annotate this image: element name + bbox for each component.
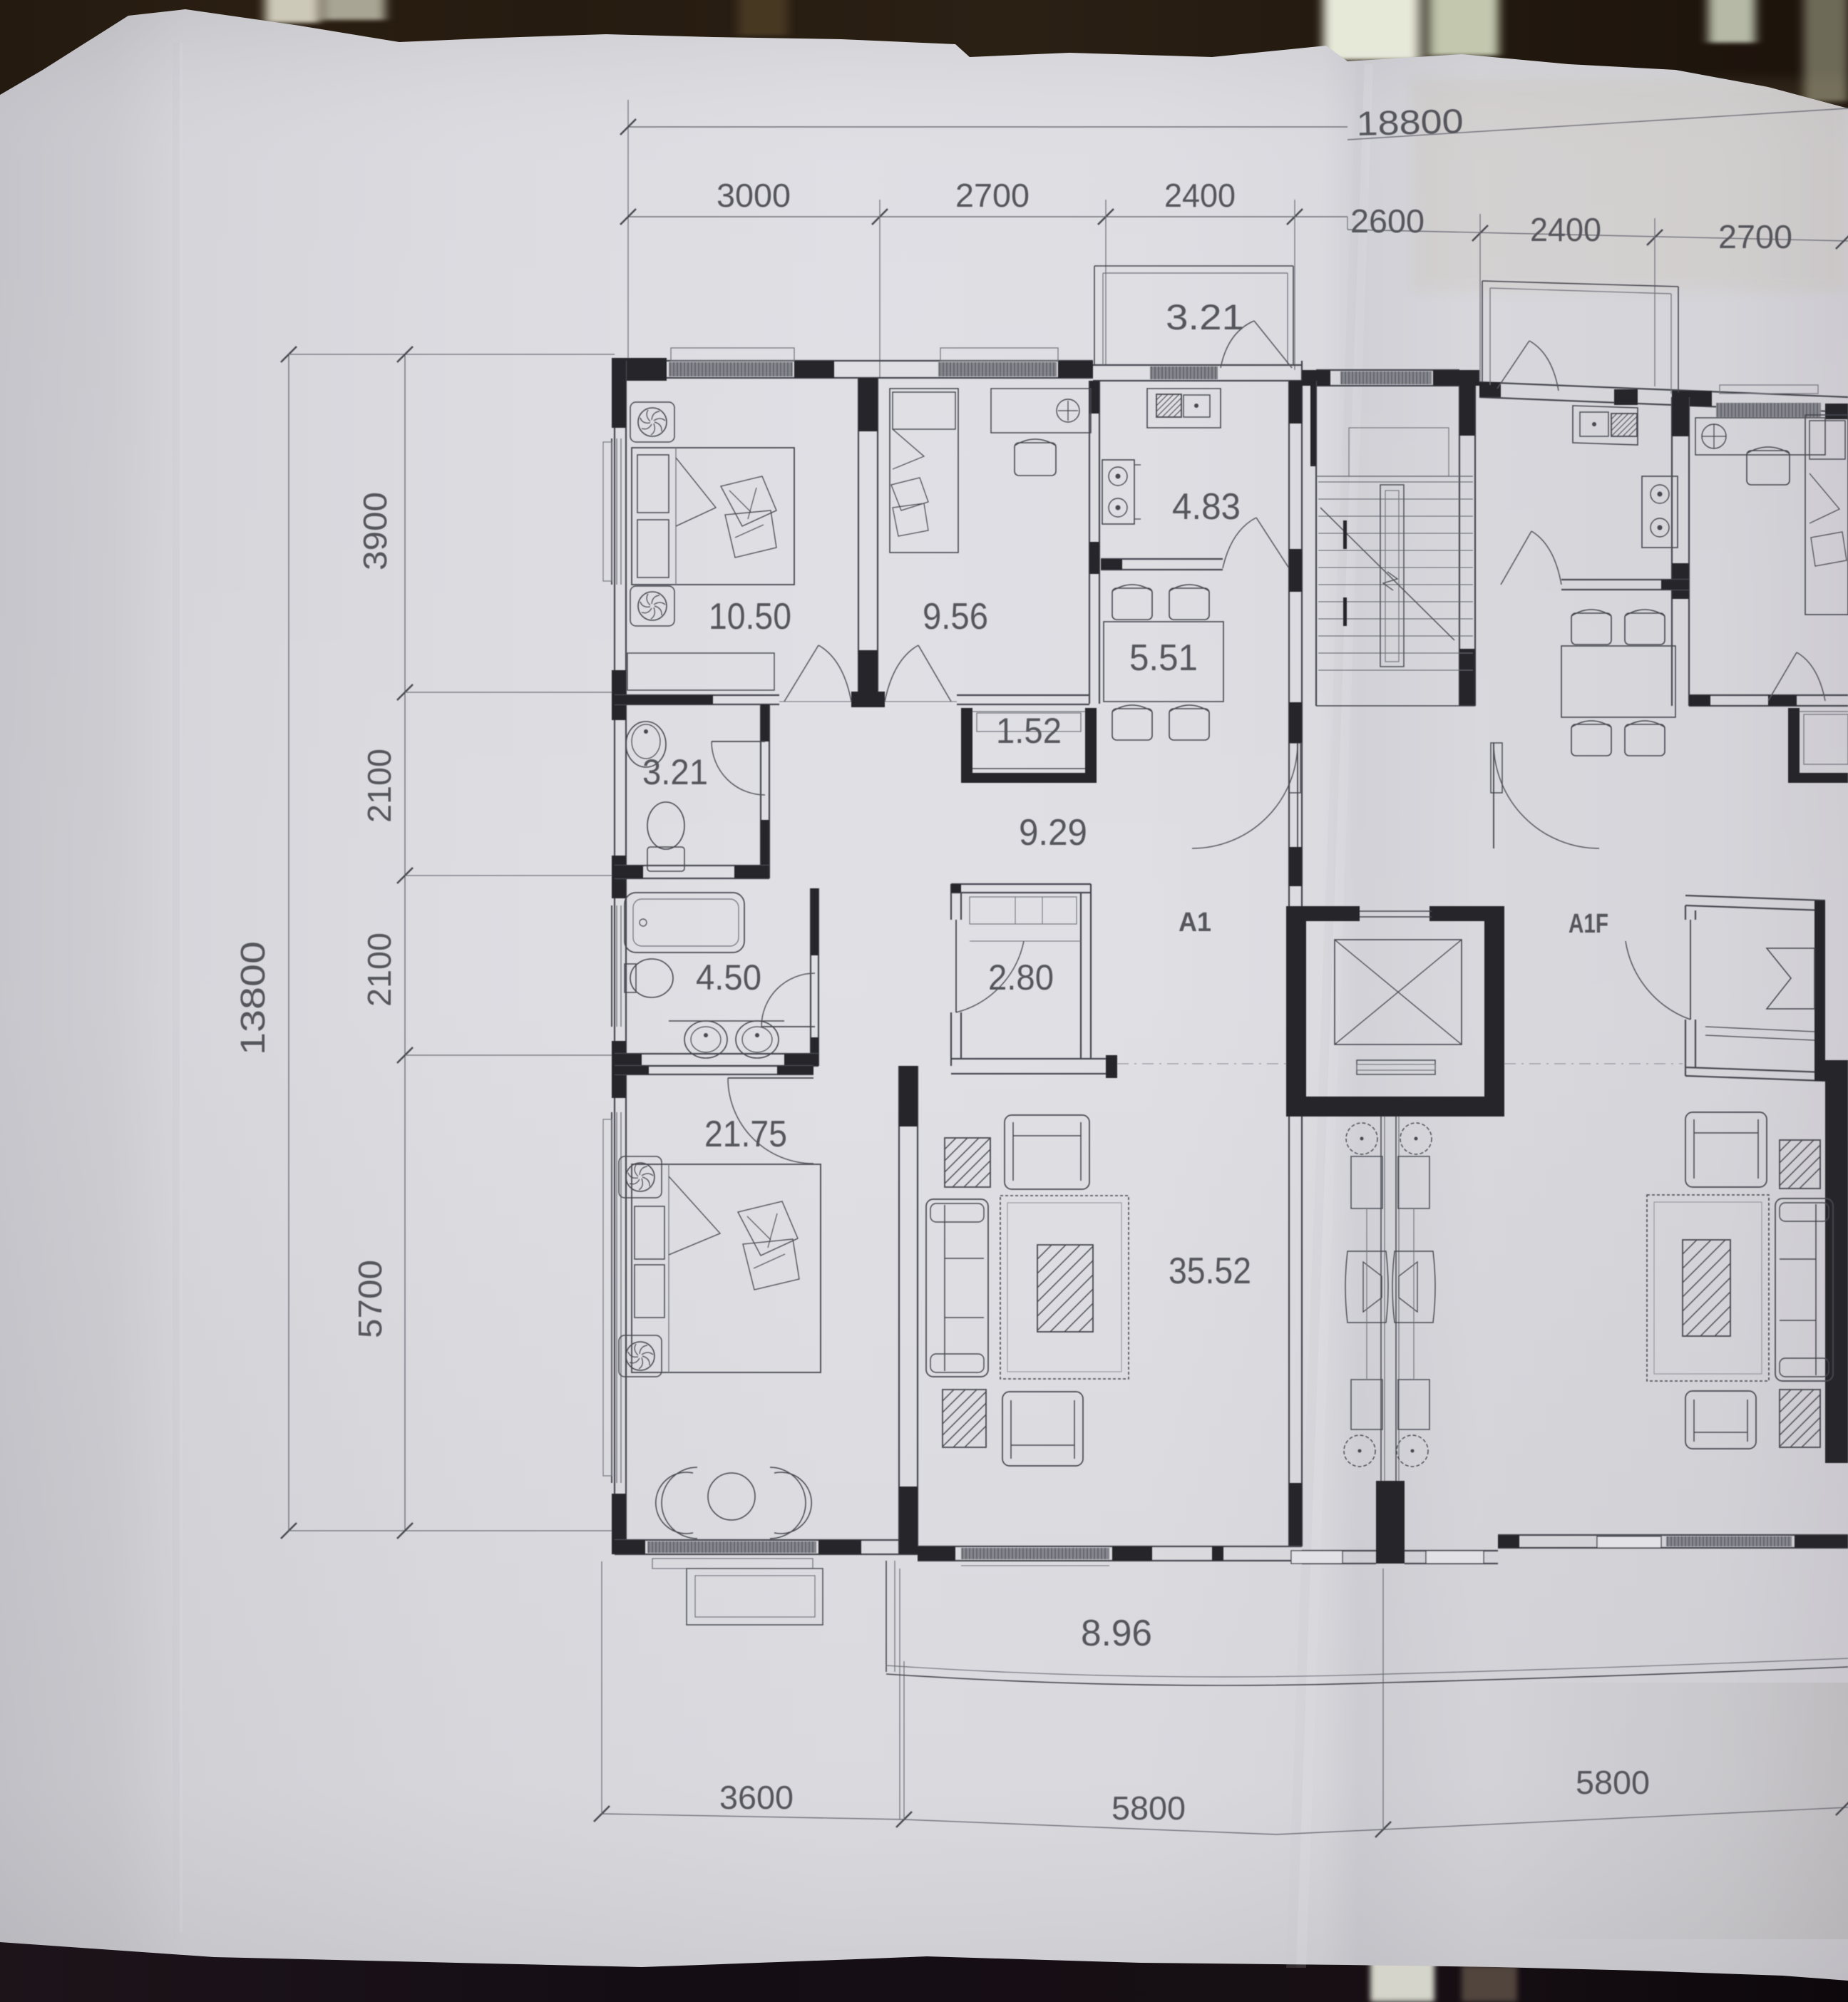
svg-text:A1F: A1F [1569,909,1608,939]
svg-text:5800: 5800 [1112,1790,1186,1827]
svg-text:9.56: 9.56 [923,596,988,637]
svg-text:2100: 2100 [361,749,398,823]
svg-text:3.21: 3.21 [1166,297,1244,337]
svg-text:18800: 18800 [1356,103,1464,143]
svg-text:2100: 2100 [361,933,398,1007]
svg-text:2700: 2700 [955,177,1030,214]
svg-text:A1: A1 [1179,908,1211,938]
svg-text:2400: 2400 [1164,177,1236,214]
svg-text:21.75: 21.75 [704,1114,787,1155]
svg-text:3600: 3600 [719,1779,794,1816]
svg-text:13800: 13800 [235,941,272,1055]
svg-text:4.83: 4.83 [1172,486,1241,528]
svg-text:3000: 3000 [717,177,791,214]
svg-text:9.29: 9.29 [1019,812,1087,853]
svg-text:5700: 5700 [351,1260,389,1338]
svg-text:10.50: 10.50 [709,596,791,637]
svg-text:5.51: 5.51 [1129,637,1198,679]
svg-text:4.50: 4.50 [696,958,761,997]
svg-text:2400: 2400 [1530,211,1601,248]
svg-text:3.21: 3.21 [642,752,708,792]
svg-text:35.52: 35.52 [1169,1251,1251,1292]
svg-text:5800: 5800 [1576,1764,1650,1801]
svg-text:2700: 2700 [1718,218,1792,255]
svg-text:8.96: 8.96 [1081,1613,1152,1654]
svg-text:2.80: 2.80 [988,958,1054,997]
svg-text:1.52: 1.52 [996,711,1062,751]
svg-text:3900: 3900 [356,492,394,570]
svg-text:2600: 2600 [1350,202,1424,240]
